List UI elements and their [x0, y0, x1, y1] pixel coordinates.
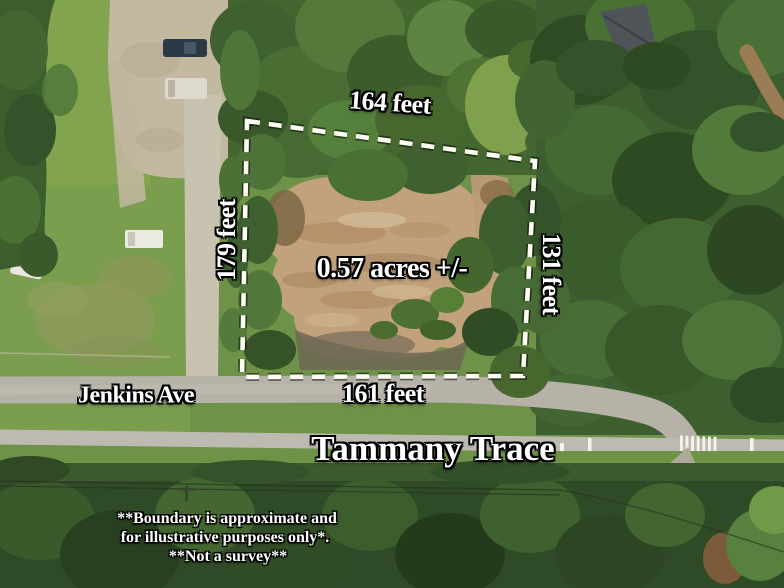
- parked-van: [165, 78, 207, 99]
- parked-truck: [163, 39, 207, 57]
- top-dimension-label: 164 feet: [348, 85, 432, 121]
- street-label-tammany-trace: Tammany Trace: [311, 429, 554, 469]
- field-truck: [125, 230, 163, 248]
- tree-over-road: [490, 346, 550, 398]
- disclaimer-line-3: **Not a survey**: [169, 548, 287, 566]
- right-dimension-label: 131 feet: [536, 233, 566, 315]
- acreage-label: 0.57 acres +/-: [317, 253, 468, 285]
- disclaimer-line-1: **Boundary is approximate and: [117, 510, 337, 528]
- disclaimer-line-2: for illustrative purposes only*.: [121, 529, 330, 547]
- bottom-dimension-label: 161 feet: [342, 379, 424, 409]
- left-dimension-label: 179 feet: [212, 199, 242, 281]
- aerial-lot-photo: 164 feet 179 feet 131 feet 0.57 acres +/…: [0, 0, 784, 588]
- street-label-jenkins-ave: Jenkins Ave: [78, 383, 194, 410]
